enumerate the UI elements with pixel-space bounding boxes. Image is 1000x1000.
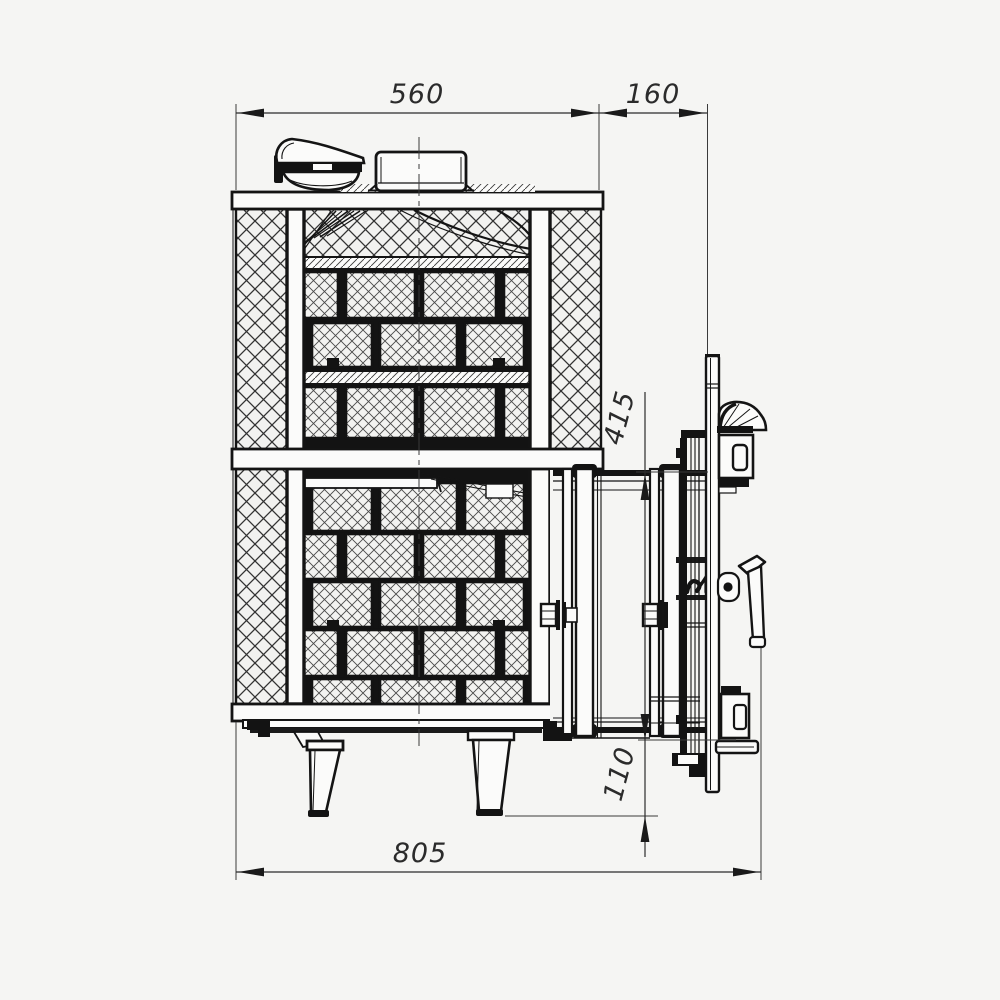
brick	[312, 582, 372, 627]
brick	[303, 272, 338, 318]
flange-ring-1	[563, 464, 597, 738]
dim-tunnel-height: 415	[598, 387, 642, 448]
brick	[346, 387, 415, 438]
dim-door-offset: 160	[626, 79, 681, 110]
dim-floor-clearance: 110	[598, 743, 642, 804]
top-plate	[232, 192, 603, 209]
lower-latch	[716, 686, 758, 753]
clamp-bolt-right	[643, 600, 668, 630]
brick	[423, 387, 496, 438]
door-handle	[718, 556, 765, 647]
brick	[346, 534, 415, 579]
brick	[423, 630, 496, 676]
handle-pivot	[723, 582, 732, 591]
brick	[423, 272, 496, 318]
brick	[465, 679, 524, 704]
brick	[312, 679, 372, 704]
brick	[346, 630, 415, 676]
brick	[303, 534, 338, 579]
rail-band-lower	[303, 371, 531, 384]
base-assembly	[243, 720, 593, 817]
brick	[346, 272, 415, 318]
middle-belt	[232, 449, 603, 469]
steam-lid	[274, 139, 364, 190]
brick	[504, 534, 531, 579]
drawing-canvas: 560 160 415 110 805	[0, 0, 1000, 1000]
door-hood	[717, 402, 766, 433]
stove-technical-drawing: 560 160 415 110 805	[0, 0, 1000, 1000]
stove-body	[232, 192, 603, 721]
brick	[423, 534, 496, 579]
brick	[504, 387, 531, 438]
dim-depth-total: 805	[393, 838, 448, 869]
brick	[303, 630, 338, 676]
top-fittings	[274, 139, 535, 192]
rear-leg	[468, 731, 514, 816]
brick	[504, 630, 531, 676]
front-leg	[294, 732, 343, 817]
brick	[312, 323, 372, 367]
chimney-collar	[368, 152, 474, 191]
brick	[303, 387, 338, 438]
bottom-plate	[232, 704, 603, 721]
brick	[312, 483, 372, 531]
dim-width-top: 560	[390, 79, 445, 110]
upper-latch	[719, 435, 753, 493]
door-and-portal	[672, 354, 766, 792]
rail-band-upper	[303, 257, 531, 269]
brick	[504, 272, 531, 318]
